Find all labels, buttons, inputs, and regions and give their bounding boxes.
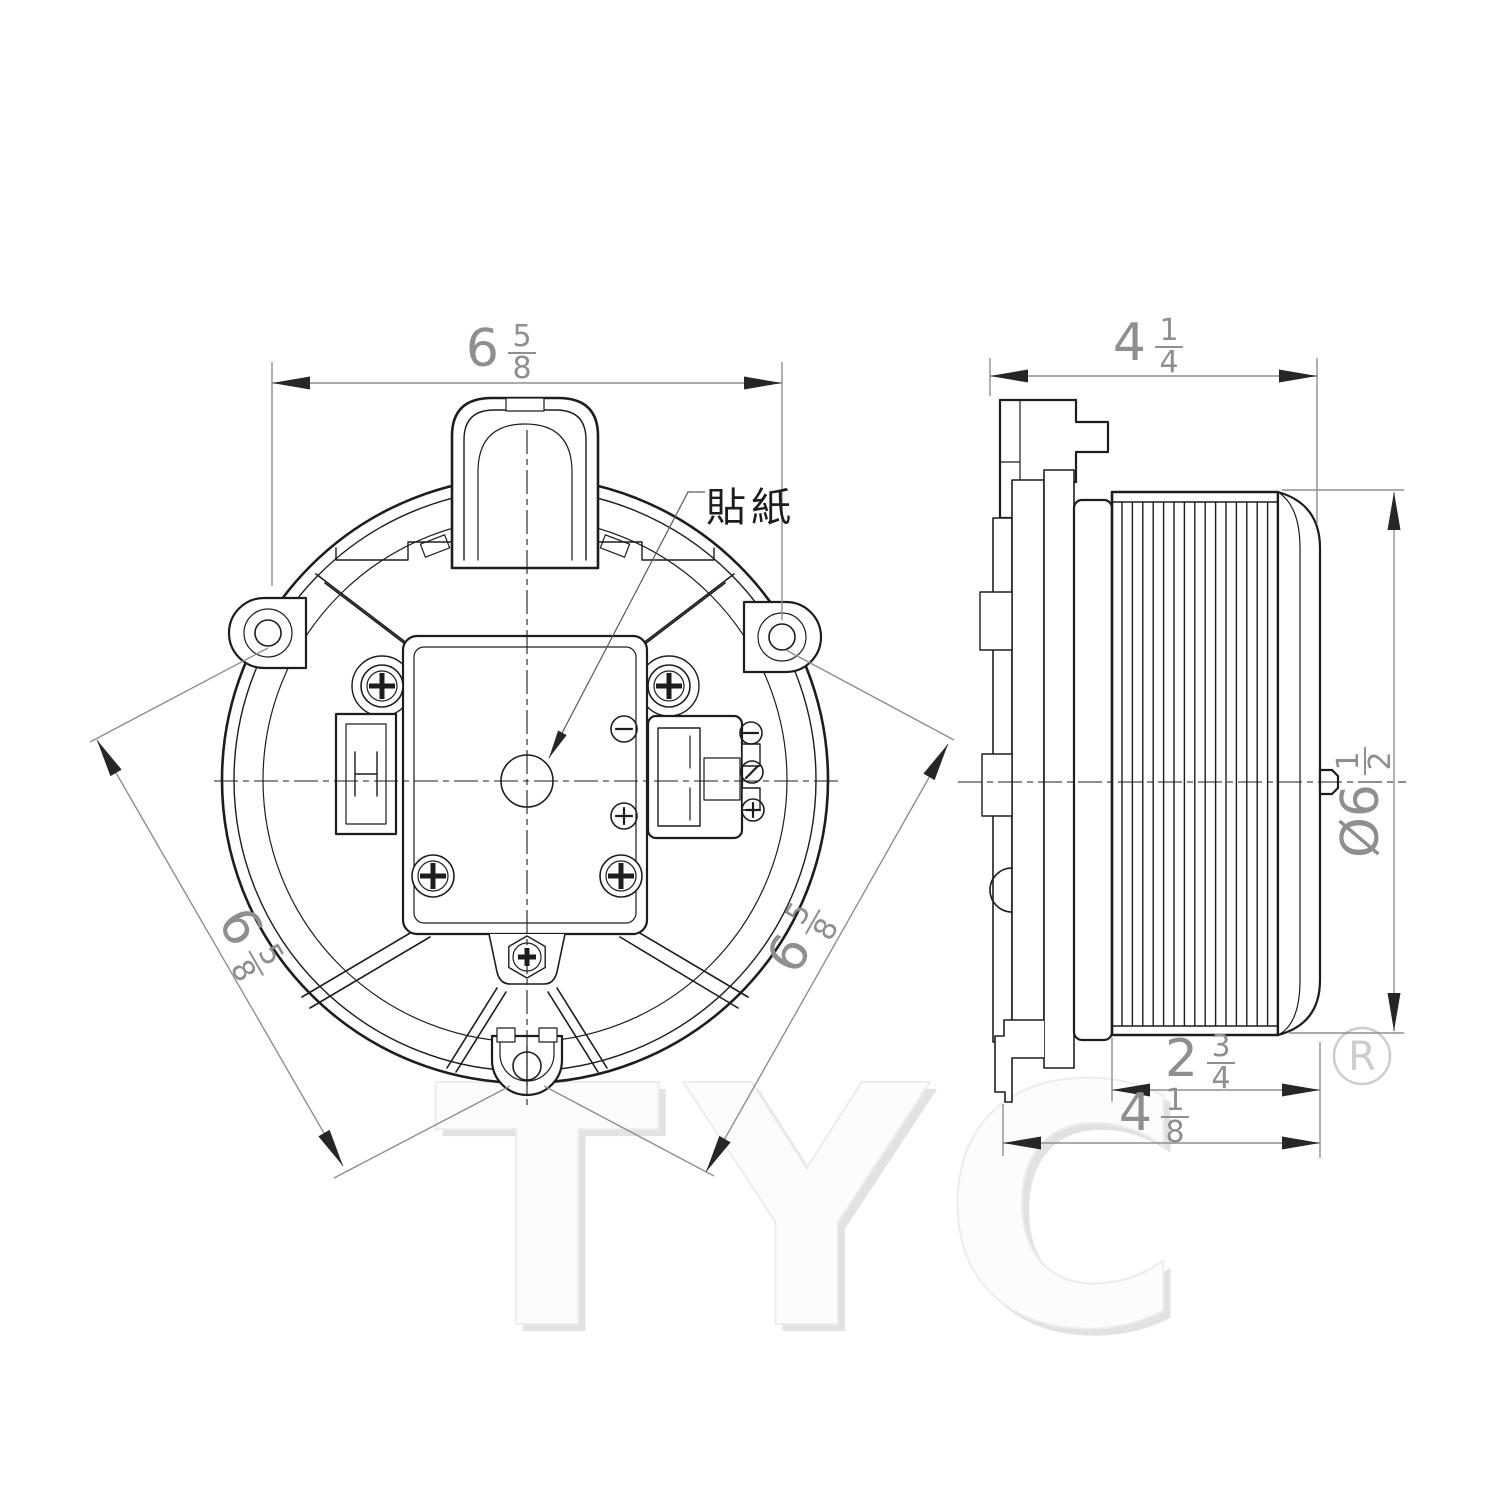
svg-text:8: 8 [512, 351, 531, 386]
blueprint-page: TYC TYC R [0, 0, 1500, 1500]
screw-bottom-right [600, 855, 642, 897]
svg-text:1: 1 [1165, 1083, 1184, 1118]
svg-text:1: 1 [1331, 751, 1366, 770]
svg-text:1: 1 [1159, 313, 1178, 348]
technical-drawing-canvas: TYC TYC R [0, 0, 1500, 1500]
svg-text:2: 2 [1165, 1029, 1198, 1089]
screw-bottom-left [412, 855, 454, 897]
svg-text:4: 4 [1119, 1083, 1152, 1143]
svg-text:6: 6 [466, 319, 499, 379]
dimension-wheel-diameter-value: Ø6 1 2 [1331, 747, 1398, 858]
svg-text:R: R [1348, 1034, 1376, 1080]
svg-text:8: 8 [1165, 1115, 1184, 1150]
svg-text:2: 2 [1363, 751, 1398, 770]
screw-top-left [361, 665, 403, 707]
wheel-end-cap [1278, 492, 1320, 1035]
svg-text:Ø6: Ø6 [1331, 784, 1391, 858]
blower-wheel [1112, 492, 1338, 1035]
mounting-tab-left [229, 598, 306, 668]
sticker-label: 貼紙 [706, 485, 796, 531]
svg-text:4: 4 [1159, 345, 1178, 380]
screw-top-right [648, 665, 690, 707]
svg-text:3: 3 [1211, 1029, 1230, 1064]
svg-text:5: 5 [512, 319, 531, 354]
connector-left [336, 714, 396, 834]
side-flange [980, 470, 1112, 1102]
svg-text:4: 4 [1113, 313, 1146, 373]
svg-text:4: 4 [1211, 1061, 1230, 1096]
